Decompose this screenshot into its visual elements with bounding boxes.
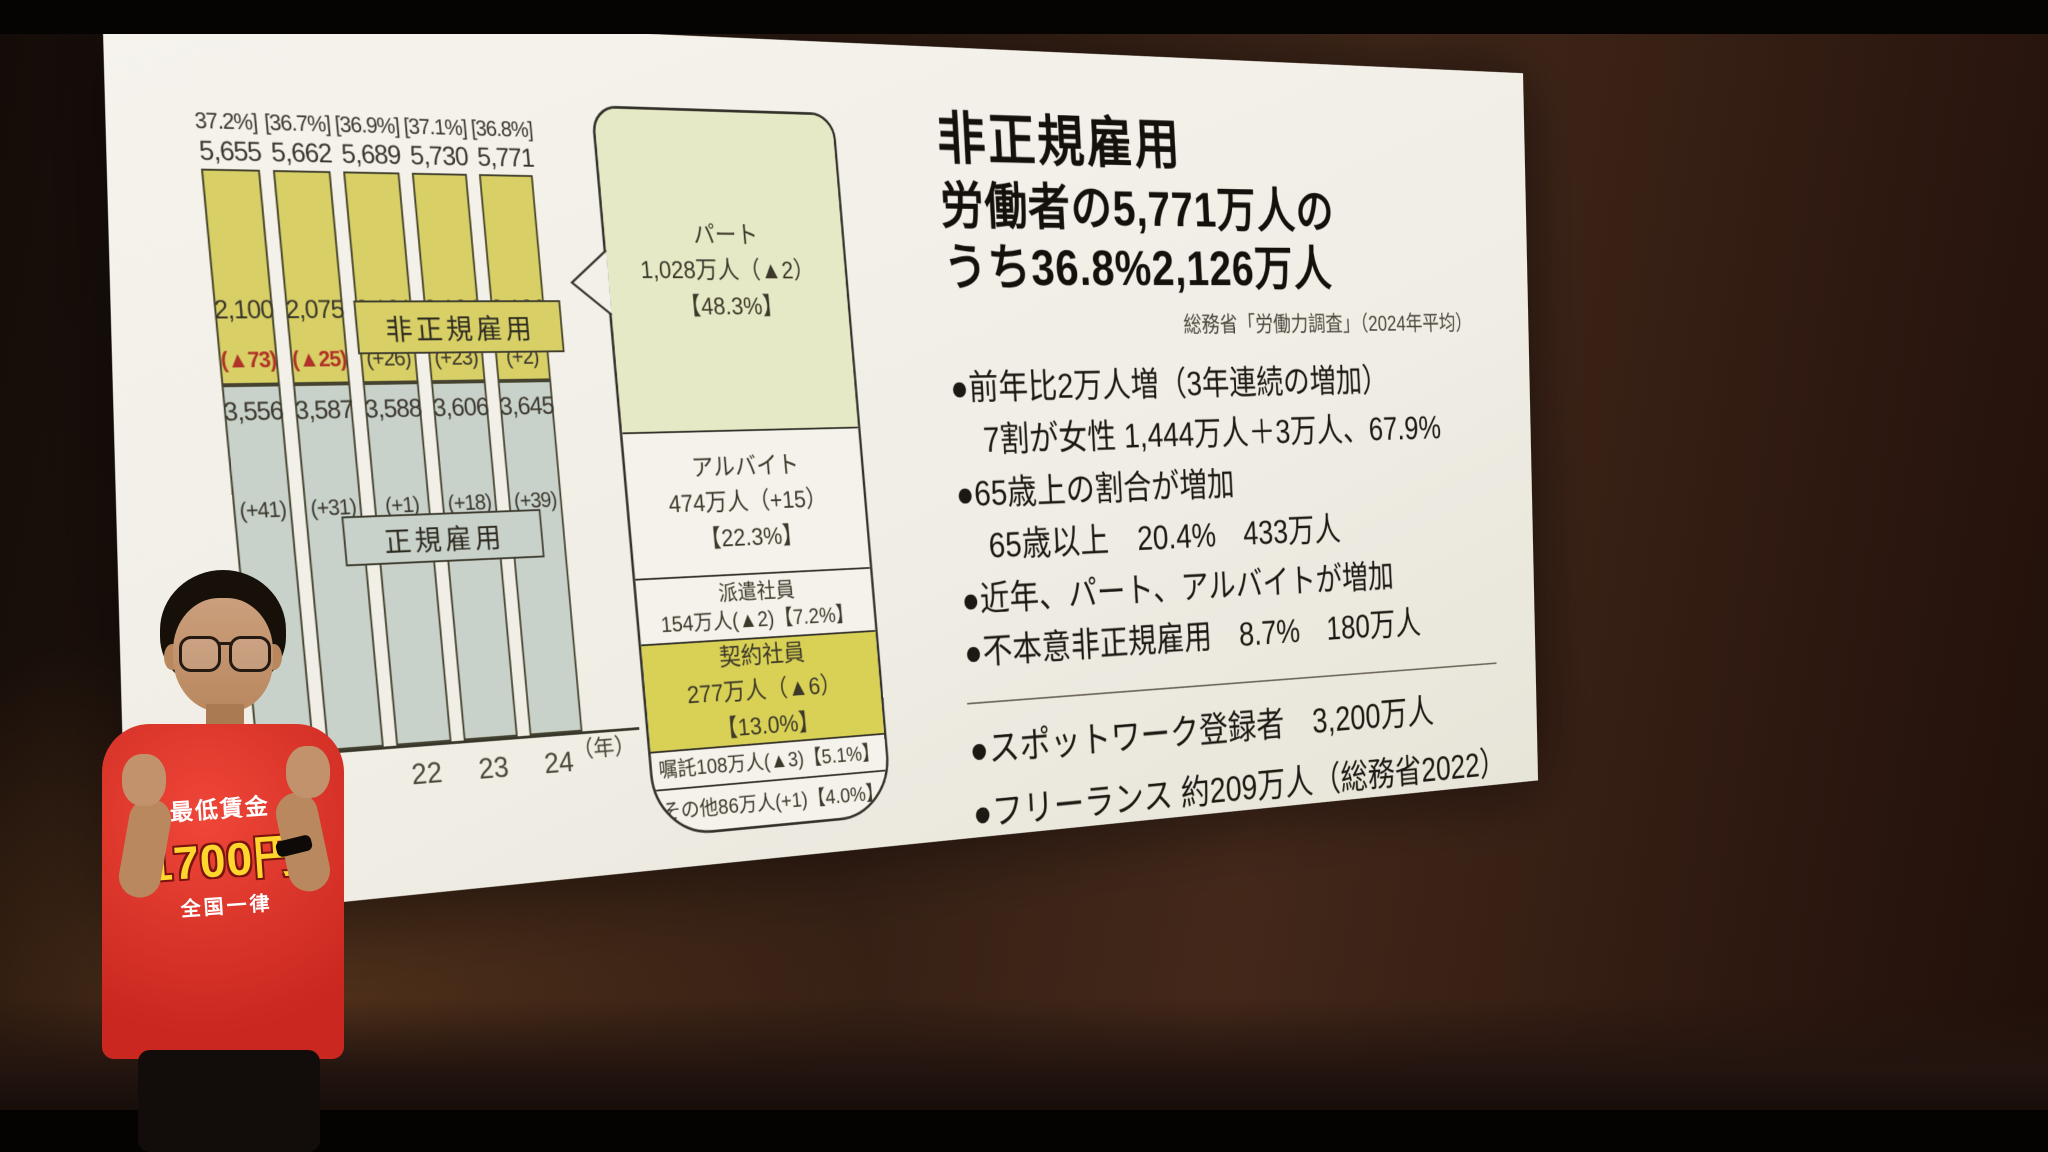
nonregular-value: 2,075 [284,295,345,325]
bullet-list: ●前年比2万人増（3年連続の増加） 7割が女性 1,444万人＋3万人、67.9… [949,355,1496,681]
breakdown-name: パート [692,218,760,254]
title-line-3: うち36.8%2,126万人 [942,237,1479,298]
total-label: 5,655 [198,135,260,170]
breakdown-share: 【22.3%】 [698,518,805,558]
regular-value: 3,587 [294,395,354,426]
breakdown-value: 1,028万人（▲2） [639,253,816,289]
breakdown-row-part: パート 1,028万人（▲2） 【48.3%】 [593,108,858,432]
breakdown-row-arbeit: アルバイト 474万人（+15） 【22.3%】 [622,427,870,579]
total-label: 5,662 [270,137,331,171]
breakdown-row-keiyaku: 契約社員 277万人（▲6） 【13.0%】 [641,630,884,752]
breakdown-value: 474万人（+15） [667,482,828,523]
presenter-pants [138,1050,320,1152]
presenter: 最低賃金 1700円 全国一律 [60,550,390,1152]
source-caption: 総務省「労働力調査」（2024年平均） [946,305,1472,340]
regular-value: 3,606 [432,393,490,423]
regular-value: 3,556 [222,396,284,427]
breakdown-name: アルバイト [690,448,800,486]
presenter-glasses [179,636,271,670]
glasses-lens [179,636,221,672]
nonregular-value: 2,100 [213,295,275,326]
regular-value: 3,588 [364,394,423,425]
glasses-lens [229,636,271,672]
total-label: 5,689 [340,139,399,173]
breakdown-name: 派遣社員 [717,576,795,608]
presenter-hand [286,746,330,798]
year-label: 22 [394,754,459,793]
total-label: 5,771 [476,142,533,175]
presenter-hand [122,754,166,806]
year-unit-label: （年） [571,727,649,766]
share-percent-label: [36.8%] [460,115,542,144]
regular-value: 3,645 [498,391,554,421]
stage-scene: 37.2%] 5,655 2,100 (▲73) 3,556 (+41) [0,0,2048,1152]
glasses-bridge [219,642,233,645]
headline-section: 非正規雇用 労働者の5,771万人の うち36.8%2,126万人 総務省「労働… [934,92,1502,847]
year-label: 23 [462,749,526,788]
breakdown-line: その他86万人(+1)【4.0%】 [661,778,885,828]
nonregular-segment: 2,075 (▲25) [273,170,350,384]
breakdown-name: 契約社員 [718,636,806,676]
breakdown-share: 【48.3%】 [678,289,785,325]
breakdown-value: 277万人（▲6） [686,668,843,714]
nonregular-change: (▲73) [220,346,278,373]
nonregular-change: (▲25) [291,346,347,373]
nonregular-label-box: 非正規雇用 [353,300,564,354]
regular-change: (+41) [238,496,287,524]
connector-notch [564,246,615,323]
top-dark-band [0,0,2048,34]
total-label: 5,730 [409,140,467,174]
title-line-2: 労働者の5,771万人の [939,175,1476,242]
nonregular-segment: 2,100 (▲73) [201,169,280,386]
